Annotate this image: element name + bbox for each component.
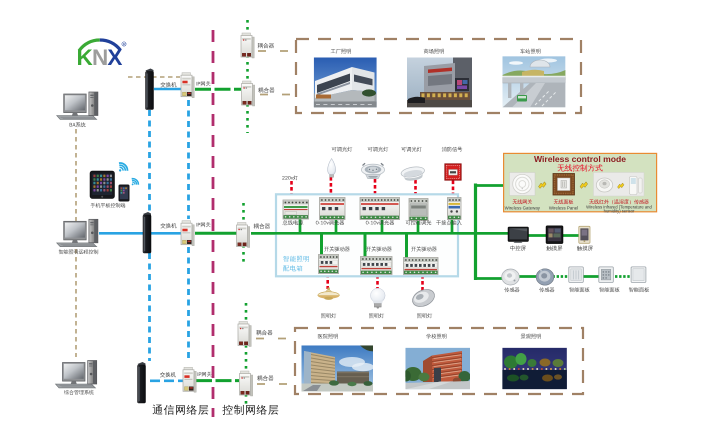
svg-text:Wireless control mode: Wireless control mode [534,154,626,164]
svg-text:R: R [123,42,126,47]
svg-text:Wireless Panel: Wireless Panel [549,205,578,210]
svg-text:KNX: KNX [77,45,123,70]
svg-text:Wireless Gateway: Wireless Gateway [505,205,541,210]
svg-text:humidity) sensor: humidity) sensor [604,209,635,214]
